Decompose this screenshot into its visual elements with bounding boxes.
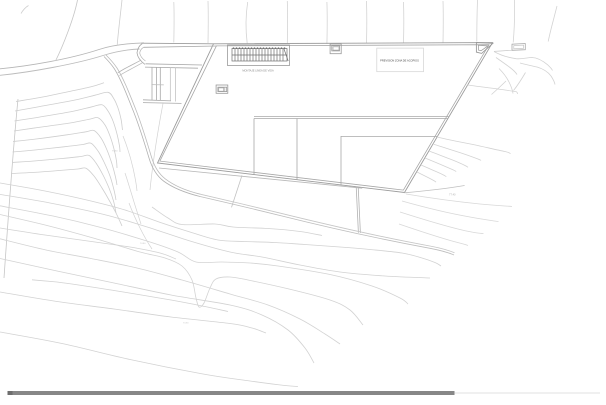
- svg-text:73.90: 73.90: [183, 323, 189, 325]
- svg-text:77.40: 77.40: [449, 193, 456, 197]
- svg-text:74.80: 74.80: [140, 243, 146, 245]
- svg-text:MONTAJE LINEA DE VIDA: MONTAJE LINEA DE VIDA: [242, 68, 274, 72]
- svg-text:PREVISION ZONA DE ACOPIOS: PREVISION ZONA DE ACOPIOS: [380, 58, 419, 62]
- svg-text:75.60: 75.60: [112, 151, 118, 153]
